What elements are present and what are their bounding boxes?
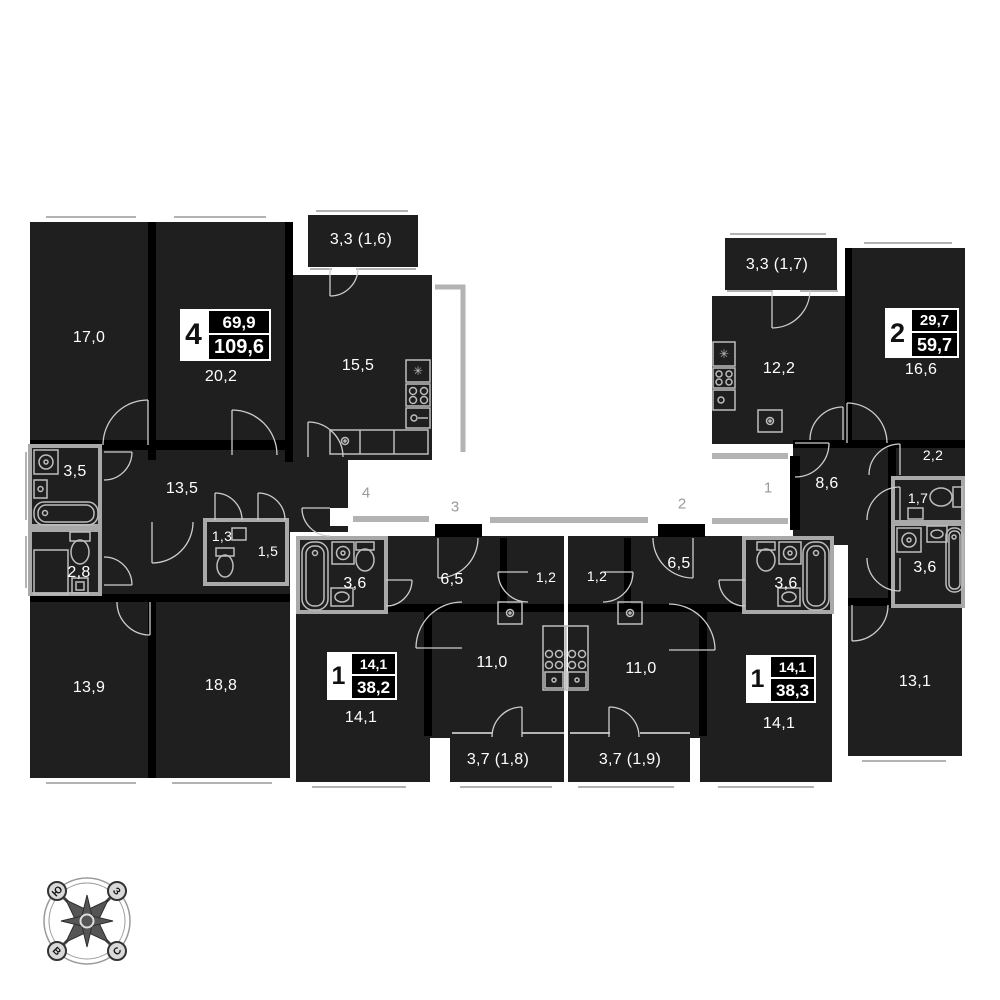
apartment-total-area: 38,2 — [352, 676, 395, 698]
room-area-label: 11,0 — [625, 660, 656, 678]
apartment-info-badge: 2 29,7 59,7 — [885, 308, 959, 358]
wall — [148, 222, 156, 460]
shaft-outline — [435, 287, 463, 452]
apartment-info-badge: 4 69,9 109,6 — [180, 309, 271, 361]
wall — [285, 222, 293, 462]
apartment-rooms-count: 4 — [180, 309, 207, 361]
corridor-end-wall — [790, 456, 800, 530]
room-area-label: 15,5 — [342, 357, 374, 375]
room-area-label: 3,6 — [913, 559, 936, 577]
corridor-unit-number: 3 — [451, 499, 459, 516]
room-area-label: 17,0 — [73, 329, 105, 347]
entry-threshold — [435, 524, 482, 537]
window — [862, 239, 954, 247]
compass-north: С — [111, 945, 124, 958]
room-area-label: 3,6 — [343, 575, 366, 593]
apt4-bottom-rooms-block — [30, 598, 290, 778]
apartment-total-area: 59,7 — [912, 333, 957, 356]
window — [44, 213, 138, 221]
room-area-label: 14,1 — [345, 709, 377, 727]
corridor-unit-number: 4 — [362, 485, 370, 502]
room-area-label: 3,7 (1,8) — [467, 751, 529, 769]
room-area-label: 3,3 (1,7) — [746, 256, 808, 274]
corridor-unit-number: 2 — [678, 496, 686, 513]
compass-letters: Ю З В С — [48, 882, 126, 960]
room-area-label: 12,2 — [763, 360, 795, 378]
window — [314, 207, 410, 214]
room-area-label: 3,6 — [774, 575, 797, 593]
balcony-glazing — [800, 290, 838, 292]
window — [860, 757, 948, 765]
corridor-wall — [490, 517, 648, 523]
window — [44, 779, 138, 787]
wall — [624, 538, 631, 604]
wall — [424, 612, 432, 736]
room-area-label: 2,2 — [923, 447, 943, 463]
apartment-living-area: 29,7 — [912, 310, 957, 331]
room-area-label: 1,3 — [212, 528, 232, 544]
balcony-glazing — [452, 732, 492, 734]
window — [716, 783, 816, 791]
fridge-glyphs: ✳ ✳ — [413, 347, 729, 378]
room-area-label: 6,5 — [440, 571, 463, 589]
room-area-label: 1,2 — [536, 569, 556, 585]
apt4-bathroom-box — [28, 444, 102, 528]
corridor-wall — [712, 518, 788, 524]
room-area-label: 6,5 — [667, 555, 690, 573]
compass-west: З — [110, 886, 122, 898]
room-area-label: 1,5 — [258, 543, 278, 559]
compass-rose: Ю З В С — [44, 878, 130, 964]
apartment-living-area: 14,1 — [771, 657, 814, 677]
apt4-wc2-box — [28, 528, 102, 596]
apartment-rooms-count: 2 — [885, 308, 910, 358]
apartment-rooms-count: 1 — [746, 655, 769, 703]
balcony-glazing — [522, 732, 564, 734]
room-area-label: 11,0 — [476, 654, 507, 672]
apartment-total-area: 38,3 — [771, 679, 814, 701]
window — [172, 213, 268, 221]
window — [458, 783, 554, 791]
window — [170, 779, 274, 787]
room-area-label: 3,7 (1,9) — [599, 751, 661, 769]
apt1l-bathroom-box — [296, 536, 388, 614]
apartment-living-area: 69,9 — [209, 311, 269, 333]
room-area-label: 1,7 — [908, 490, 928, 506]
room-area-label: 20,2 — [205, 368, 237, 386]
balcony-glazing — [640, 732, 690, 734]
corridor-wall — [712, 453, 788, 459]
compass-east: В — [50, 945, 63, 958]
wall — [148, 598, 156, 778]
room-area-label: 18,8 — [205, 677, 237, 695]
room-area-label: 3,3 (1,6) — [330, 231, 392, 249]
window — [310, 783, 408, 791]
wall — [845, 248, 852, 444]
entry-door-gap — [330, 508, 350, 526]
entry-threshold — [658, 524, 705, 537]
room-area-label: 3,5 — [63, 463, 86, 481]
floor-plan: ✳ ✳ Ю З В С — [0, 0, 1000, 1000]
compass-star — [66, 900, 108, 942]
balcony-glazing — [356, 268, 416, 270]
balcony-glazing — [310, 268, 332, 270]
room-area-label: 14,1 — [763, 715, 795, 733]
apartment-total-area: 109,6 — [209, 335, 269, 359]
balcony-glazing — [570, 732, 610, 734]
room-area-label: 16,6 — [905, 361, 937, 379]
apartment-info-badge: 1 14,1 38,3 — [746, 655, 816, 703]
compass-star2 — [61, 895, 113, 947]
room-area-label: 2,8 — [67, 564, 90, 582]
compass-south: Ю — [50, 884, 65, 899]
room-area-label: 13,1 — [899, 673, 931, 691]
corridor-wall — [353, 516, 429, 522]
window — [728, 230, 828, 237]
apartment-living-area: 14,1 — [352, 654, 395, 674]
balcony-glazing — [727, 290, 773, 292]
wall — [699, 612, 707, 736]
room-area-label: 1,2 — [587, 568, 607, 584]
apartment-rooms-count: 1 — [327, 652, 350, 700]
window — [576, 783, 676, 791]
apartment-info-badge: 1 14,1 38,2 — [327, 652, 397, 700]
wall — [500, 538, 507, 604]
room-area-label: 8,6 — [815, 475, 838, 493]
room-area-label: 13,9 — [73, 679, 105, 697]
room-area-label: 13,5 — [166, 480, 198, 498]
corridor-unit-number: 1 — [764, 480, 772, 497]
